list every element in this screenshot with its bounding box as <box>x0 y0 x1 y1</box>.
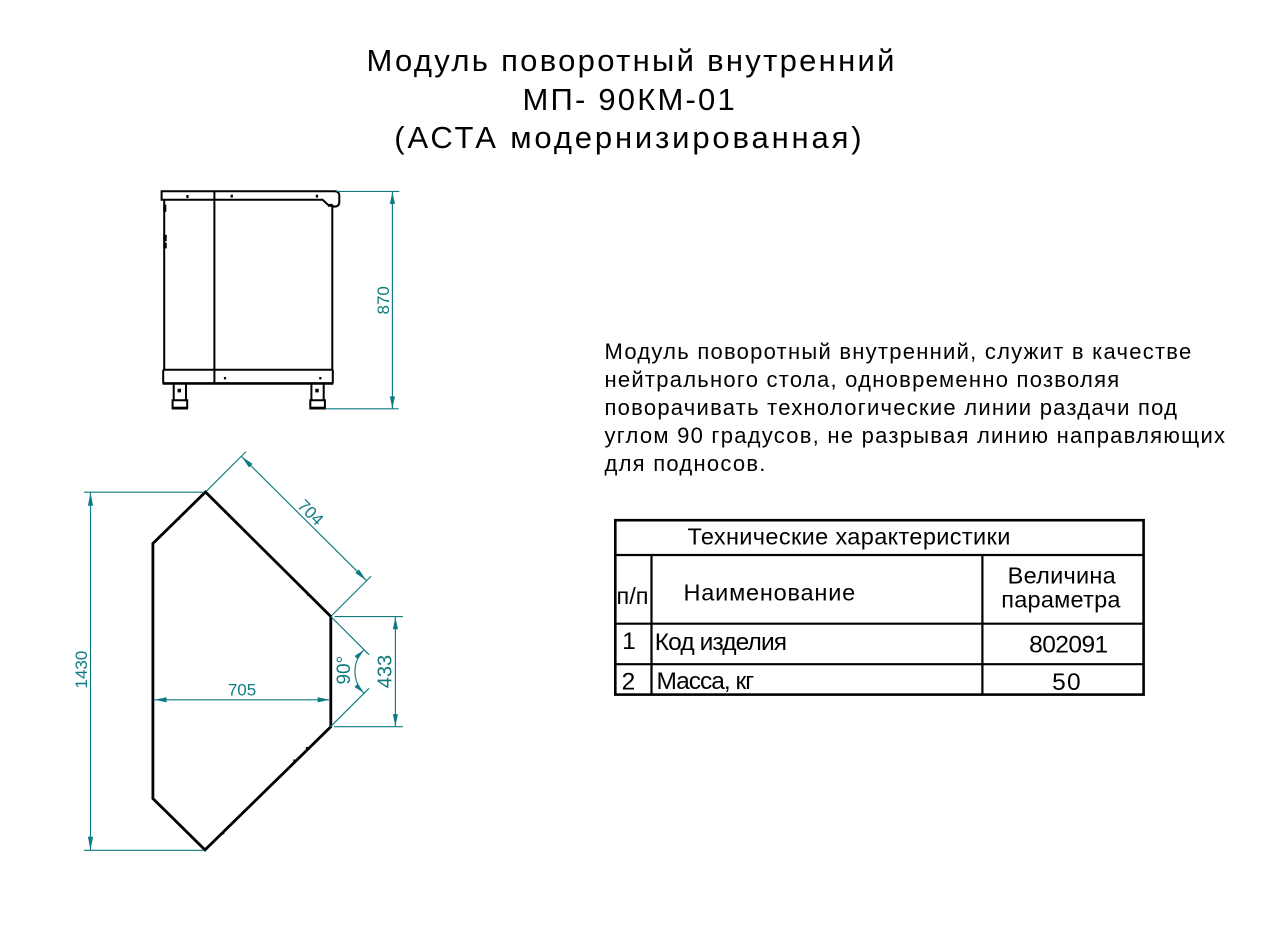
svg-text:705: 705 <box>228 681 256 700</box>
svg-text:п/п: п/п <box>617 583 649 609</box>
svg-text:50: 50 <box>1052 669 1082 696</box>
svg-text:Масса, кг: Масса, кг <box>657 668 755 695</box>
svg-text:870: 870 <box>374 286 393 314</box>
svg-text:2: 2 <box>622 669 636 696</box>
svg-text:Наименование: Наименование <box>684 580 857 606</box>
svg-text:Код изделия: Код изделия <box>655 629 786 656</box>
svg-text:704: 704 <box>294 496 327 529</box>
svg-text:параметра: параметра <box>1001 587 1121 613</box>
svg-text:90°: 90° <box>334 656 355 685</box>
svg-text:433: 433 <box>375 655 397 688</box>
svg-text:Технические характеристики: Технические характеристики <box>688 524 1011 550</box>
svg-text:1: 1 <box>622 628 636 655</box>
svg-text:802091: 802091 <box>1029 632 1107 659</box>
svg-text:1430: 1430 <box>72 651 91 689</box>
svg-text:Величина: Величина <box>1008 562 1117 588</box>
